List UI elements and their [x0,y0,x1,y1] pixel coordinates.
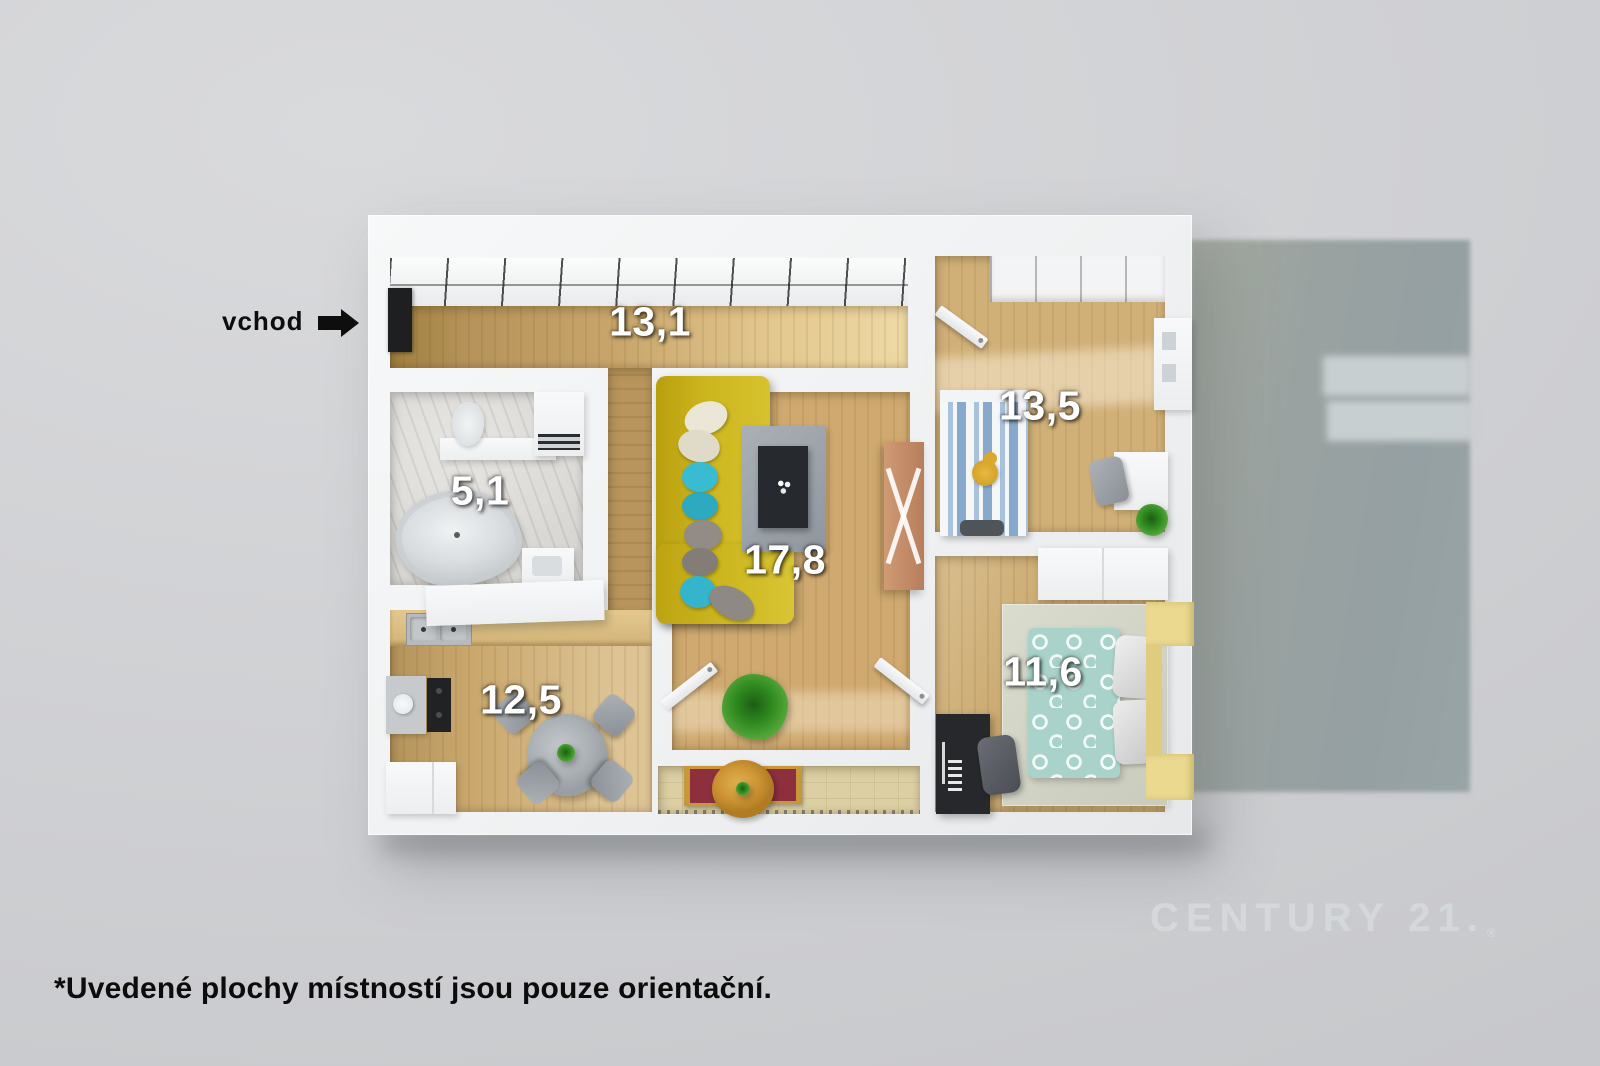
wardrobe-lower [1038,548,1168,600]
bathtub-drain [454,532,460,538]
entrance-arrow-icon [318,316,341,330]
cabinet-pane [1162,332,1176,350]
toilet [452,402,484,446]
headboard-rail [1146,644,1162,760]
kitchen-side-counter [386,676,426,734]
registered-mark-icon: ® [1487,926,1496,940]
cooktop [427,678,451,732]
washing-machine-slats [538,434,580,450]
fridge-seam [432,762,434,814]
corridor-floor [608,368,652,614]
brand-watermark-text: CENTURY 21. [1150,896,1485,940]
corner-plant [1136,504,1168,536]
monitor-icon [942,742,945,784]
window-reflection-icon [1327,401,1473,441]
sofa-pillow-teal [682,492,718,520]
sink-basin [532,556,562,576]
washing-machine [534,392,584,456]
sink-drain [451,627,456,632]
glass-cabinet [1154,318,1192,410]
area-label-bedroom-upper: 13,5 [999,383,1081,430]
burner [436,688,442,694]
burner [436,712,442,718]
window-reflection-icon [1323,356,1471,396]
sunlight-patch [672,692,910,732]
door-handle [918,693,925,700]
area-label-bedroom-lower: 11,6 [1003,649,1083,696]
table-flowers [776,478,792,496]
kitchen-upper-cabinet [425,580,604,626]
area-label-bathroom: 5,1 [451,468,510,515]
door-handle [706,666,713,673]
fridge [386,762,456,814]
entrance-door [388,288,412,352]
footnote-disclaimer: *Uvedené plochy místností jsou pouze ori… [54,972,772,1006]
area-label-kitchen: 12,5 [480,677,562,724]
sink-drain [421,627,426,632]
entrance-label: vchod [222,306,304,337]
floorplan-scene: 13,1 5,1 17,8 12,5 13,5 11,6 vchod CENTU… [0,0,1600,1066]
headboard-block [1146,754,1194,800]
area-label-living-room: 17,8 [744,537,826,584]
building-cast-shadow [1190,240,1470,792]
entrance-arrow-icon [341,309,359,337]
bedroom-closet-row [990,256,1165,302]
teddy-head [984,452,997,465]
balcony-railing [658,810,920,814]
sofa-pillow-gray [682,548,718,576]
cabinet-pane [1162,364,1176,382]
bed-end-stool [960,520,1004,536]
area-label-hallway: 13,1 [609,299,691,346]
sofa-pillow-teal [682,462,718,492]
door-handle [977,337,984,344]
floor-plant [722,674,788,740]
headboard-block [1146,602,1194,646]
table-plant [557,744,575,762]
coffee-table [758,446,808,528]
sofa-pillow-gray [684,520,722,550]
wardrobe-seam [1102,548,1104,600]
computer-icon [948,760,962,792]
teddy-bear [972,460,998,486]
desk-chair-lower [976,734,1022,797]
balcony-plant [736,782,750,796]
brand-watermark: CENTURY 21.® [1150,896,1496,941]
coffee-maker [393,694,413,714]
console-table [884,442,924,590]
